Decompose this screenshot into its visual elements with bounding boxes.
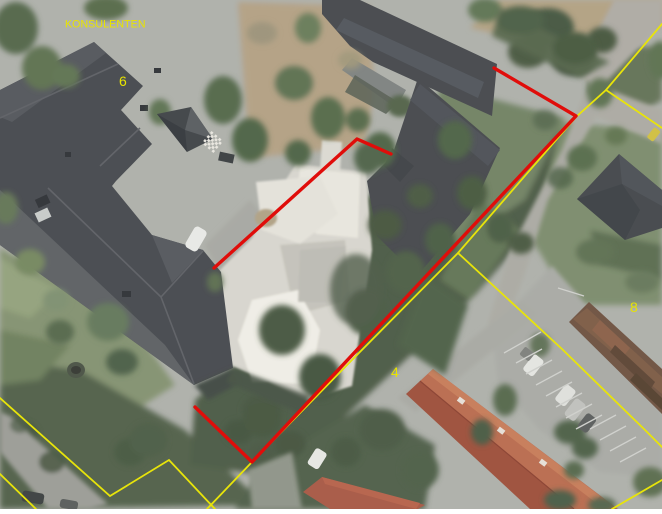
svg-text:4: 4 xyxy=(391,364,399,380)
svg-text:8: 8 xyxy=(630,299,638,315)
svg-text:6: 6 xyxy=(119,73,127,89)
svg-text:KONSULENTEN: KONSULENTEN xyxy=(65,19,146,31)
